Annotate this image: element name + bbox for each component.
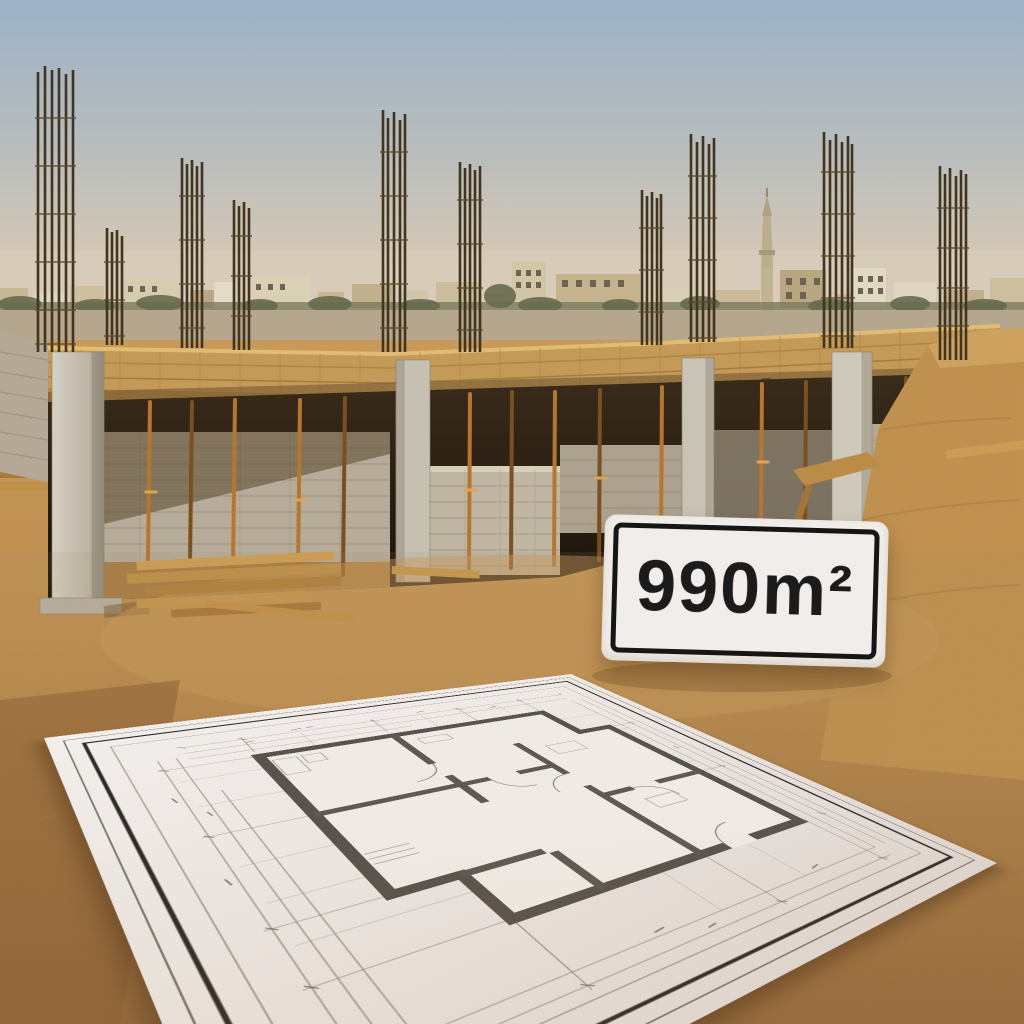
photo-canvas: 990m² <box>0 0 1024 1024</box>
area-sign: 990m² <box>601 514 889 668</box>
sign-label: 990m² <box>635 550 855 628</box>
block-wall-far-left <box>0 332 48 482</box>
sign-border: 990m² <box>610 522 880 659</box>
